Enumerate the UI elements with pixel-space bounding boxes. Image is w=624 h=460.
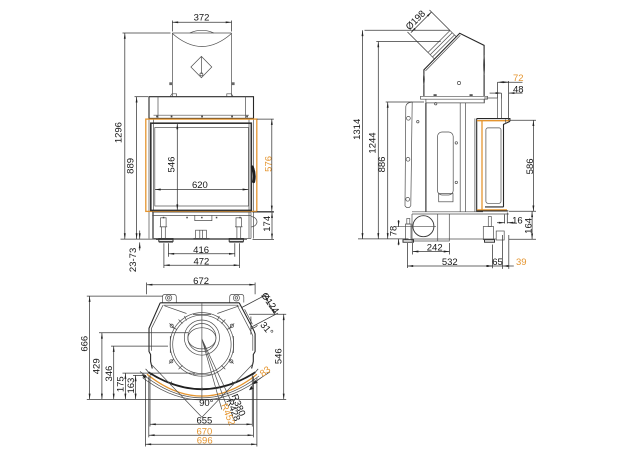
svg-text:546: 546: [274, 348, 285, 364]
svg-text:72: 72: [513, 73, 524, 84]
svg-text:48: 48: [513, 84, 524, 95]
svg-text:346: 346: [104, 366, 115, 382]
svg-text:889: 889: [126, 158, 137, 174]
svg-text:472: 472: [193, 256, 209, 267]
svg-text:78: 78: [389, 226, 400, 237]
svg-text:Ø124: Ø124: [258, 291, 280, 316]
svg-text:576: 576: [263, 156, 274, 172]
svg-text:1244: 1244: [368, 132, 379, 153]
svg-text:666: 666: [79, 336, 90, 352]
svg-text:696: 696: [197, 435, 213, 446]
svg-text:39: 39: [516, 257, 527, 268]
svg-text:1296: 1296: [114, 122, 125, 143]
svg-text:546: 546: [167, 157, 178, 173]
svg-text:16: 16: [512, 216, 523, 227]
svg-text:655: 655: [196, 415, 212, 426]
svg-text:174: 174: [262, 216, 273, 232]
svg-text:163: 163: [126, 378, 137, 394]
svg-text:164: 164: [524, 218, 535, 234]
svg-text:23-73: 23-73: [128, 248, 139, 272]
svg-text:429: 429: [92, 358, 103, 374]
svg-text:372: 372: [194, 12, 210, 23]
svg-text:65: 65: [492, 257, 503, 268]
svg-text:586: 586: [525, 158, 536, 174]
svg-text:242: 242: [427, 243, 443, 254]
svg-text:672: 672: [193, 276, 209, 287]
svg-text:Ø198: Ø198: [404, 8, 428, 32]
svg-text:886: 886: [377, 157, 388, 173]
svg-text:620: 620: [192, 180, 208, 191]
svg-text:175: 175: [116, 376, 127, 392]
svg-text:83: 83: [258, 364, 273, 379]
svg-text:1314: 1314: [352, 119, 363, 140]
svg-text:416: 416: [193, 245, 209, 256]
svg-text:532: 532: [442, 257, 458, 268]
